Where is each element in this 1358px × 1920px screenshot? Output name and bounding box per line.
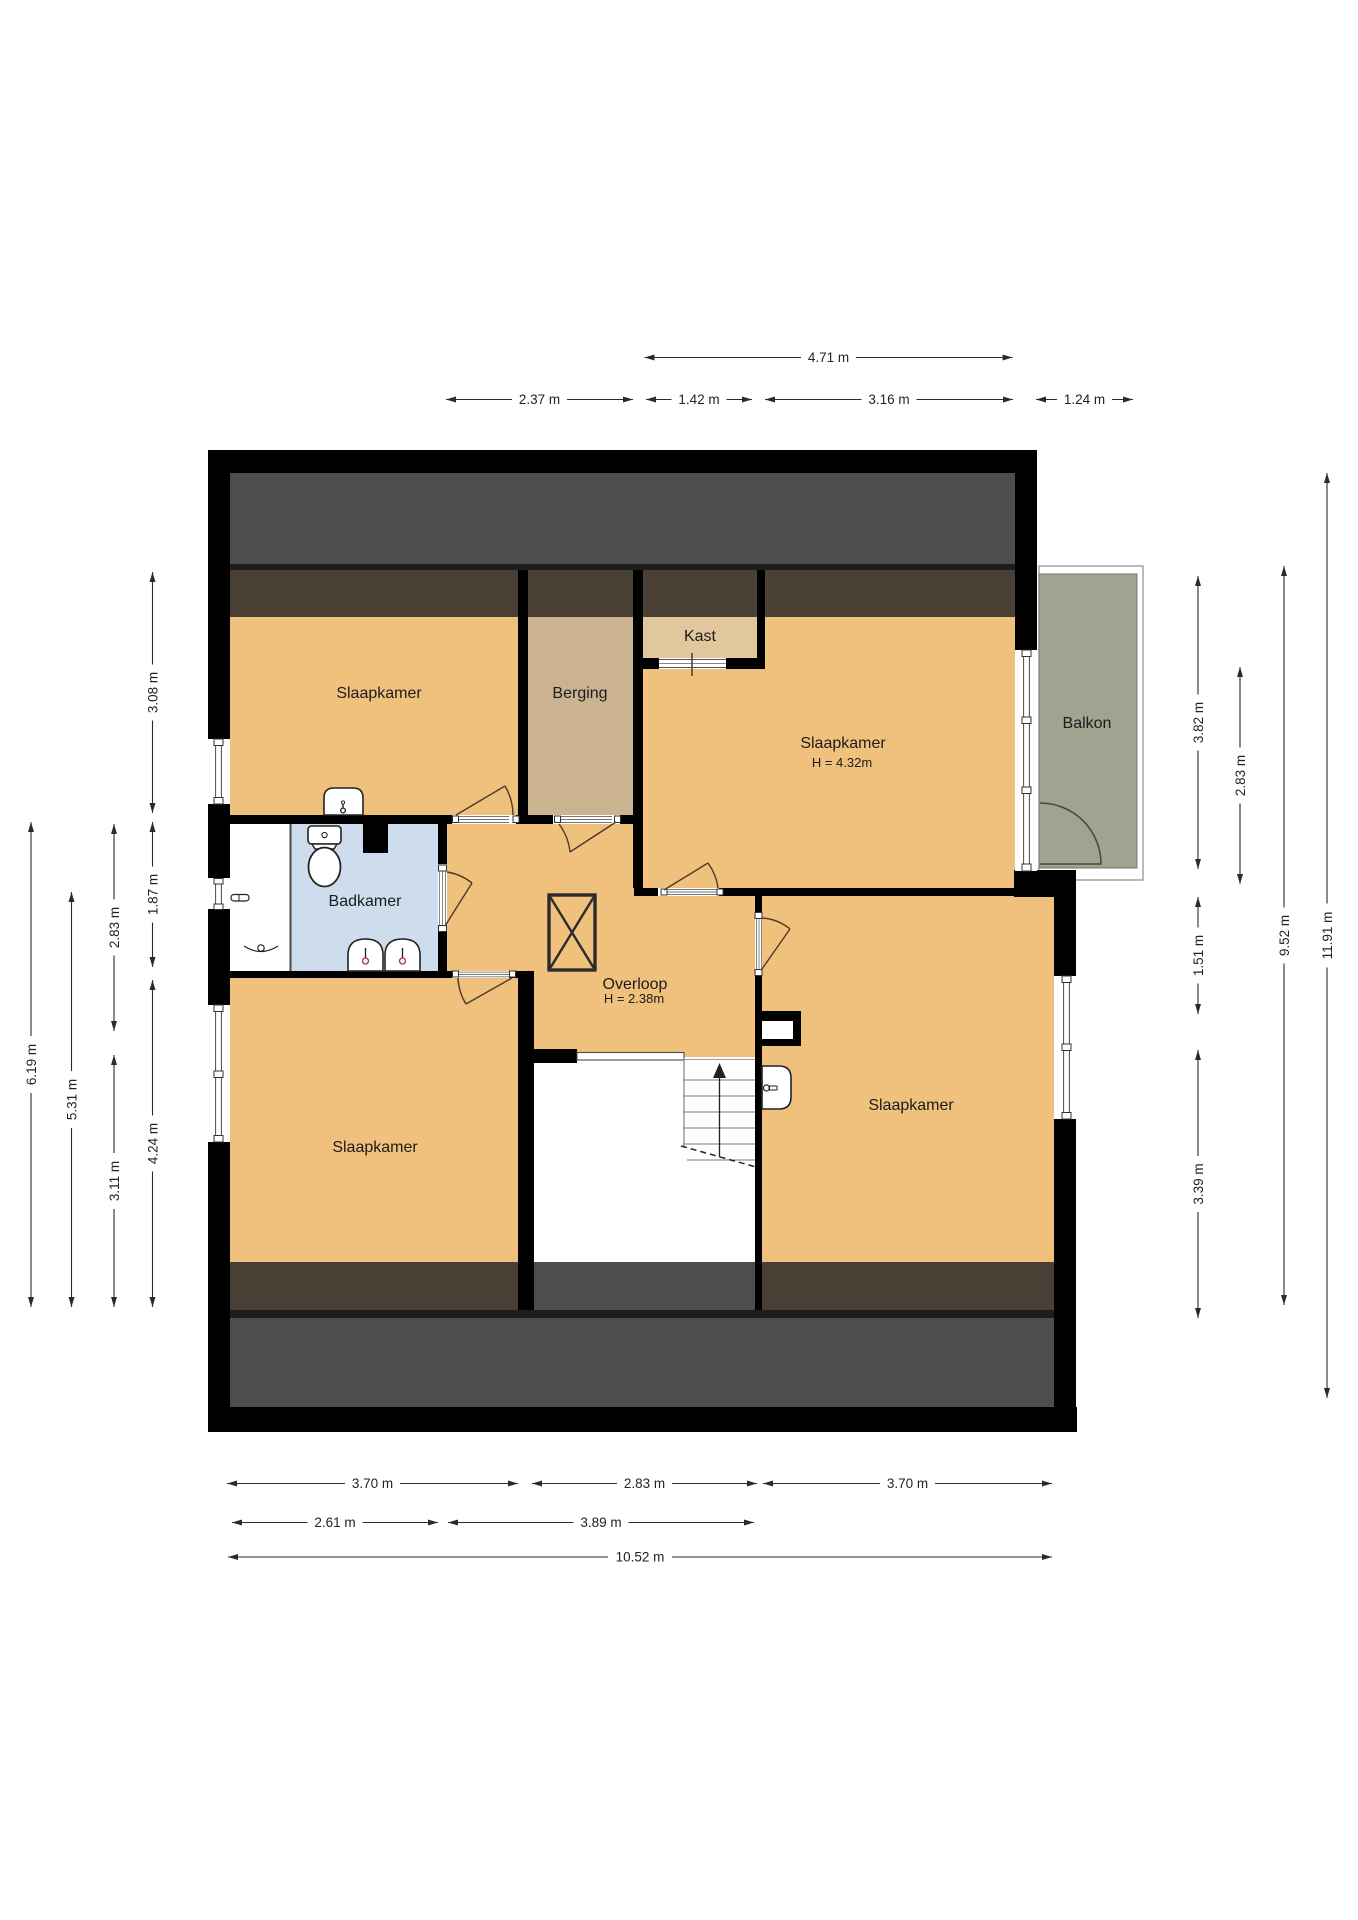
svg-text:Slaapkamer: Slaapkamer (332, 1139, 418, 1156)
svg-text:5.31 m: 5.31 m (65, 1079, 80, 1120)
svg-text:2.37 m: 2.37 m (519, 392, 560, 407)
svg-text:2.83 m: 2.83 m (107, 907, 122, 948)
svg-text:3.16 m: 3.16 m (868, 392, 909, 407)
svg-text:2.83 m: 2.83 m (1233, 755, 1248, 796)
svg-text:1.24 m: 1.24 m (1064, 392, 1105, 407)
svg-text:3.11 m: 3.11 m (107, 1161, 122, 1201)
svg-text:11.91 m: 11.91 m (1320, 912, 1335, 960)
svg-text:Kast: Kast (684, 628, 717, 645)
svg-text:1.42 m: 1.42 m (678, 392, 719, 407)
svg-text:4.24 m: 4.24 m (146, 1123, 161, 1164)
svg-text:3.70 m: 3.70 m (352, 1476, 393, 1491)
svg-text:9.52 m: 9.52 m (1277, 915, 1292, 956)
svg-text:H = 2.38m: H = 2.38m (604, 991, 664, 1006)
svg-text:3.89 m: 3.89 m (580, 1515, 621, 1530)
svg-text:1.87 m: 1.87 m (146, 874, 161, 915)
svg-text:10.52 m: 10.52 m (616, 1550, 665, 1565)
svg-text:Badkamer: Badkamer (329, 893, 403, 910)
svg-text:2.61 m: 2.61 m (314, 1515, 355, 1530)
svg-text:Slaapkamer: Slaapkamer (800, 735, 886, 752)
svg-text:Slaapkamer: Slaapkamer (336, 685, 422, 702)
svg-text:6.19 m: 6.19 m (24, 1044, 39, 1085)
svg-text:3.82 m: 3.82 m (1191, 702, 1206, 743)
svg-text:2.83 m: 2.83 m (624, 1476, 665, 1491)
svg-text:3.08 m: 3.08 m (146, 672, 161, 713)
svg-text:Slaapkamer: Slaapkamer (868, 1097, 954, 1114)
svg-text:3.70 m: 3.70 m (887, 1476, 928, 1491)
svg-text:H = 4.32m: H = 4.32m (812, 755, 872, 770)
svg-text:Berging: Berging (552, 685, 607, 702)
svg-text:4.71 m: 4.71 m (808, 350, 849, 365)
svg-text:1.51 m: 1.51 m (1191, 935, 1206, 976)
svg-text:Balkon: Balkon (1063, 715, 1112, 732)
svg-text:3.39 m: 3.39 m (1191, 1163, 1206, 1204)
